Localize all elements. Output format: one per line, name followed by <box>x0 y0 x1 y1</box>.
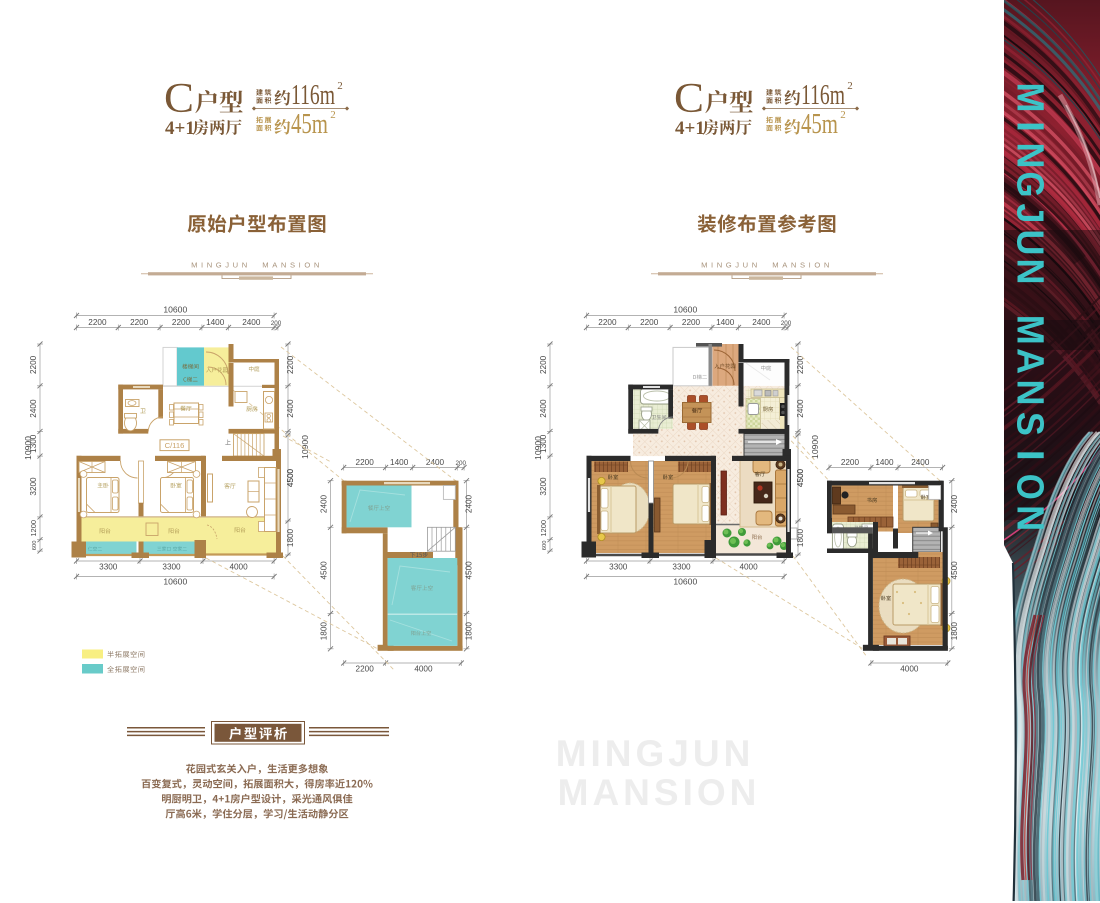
svg-text:4500: 4500 <box>465 561 474 580</box>
svg-text:4000: 4000 <box>900 665 919 674</box>
svg-text:1800: 1800 <box>286 528 295 547</box>
svg-text:1400: 1400 <box>390 458 409 467</box>
svg-text:4500: 4500 <box>796 468 805 487</box>
svg-text:2200: 2200 <box>682 318 701 327</box>
svg-text:4+1: 4+1 <box>165 118 195 139</box>
svg-text:4000: 4000 <box>229 563 248 572</box>
svg-text:1400: 1400 <box>875 458 894 467</box>
svg-text:2400: 2400 <box>320 494 329 513</box>
svg-text:10900: 10900 <box>23 436 33 460</box>
svg-text:2400: 2400 <box>752 318 771 327</box>
svg-text:2200: 2200 <box>88 318 107 327</box>
svg-text:4500: 4500 <box>320 561 329 580</box>
svg-text:2400: 2400 <box>426 458 445 467</box>
svg-text:200: 200 <box>455 460 466 467</box>
svg-text:4500: 4500 <box>950 561 959 580</box>
svg-text:10600: 10600 <box>163 305 187 315</box>
svg-text:N: N <box>1009 380 1051 406</box>
svg-text:2200: 2200 <box>29 355 38 374</box>
svg-text:2200: 2200 <box>356 665 375 674</box>
svg-text:C: C <box>164 76 194 122</box>
svg-text:1400: 1400 <box>716 318 735 327</box>
svg-text:2200: 2200 <box>130 318 149 327</box>
svg-text:MINGJUN: MINGJUN <box>556 733 755 774</box>
svg-text:1400: 1400 <box>206 318 225 327</box>
svg-text:10900: 10900 <box>810 435 820 459</box>
svg-text:MINGJUN MANSION: MINGJUN MANSION <box>191 261 323 270</box>
svg-text:MANSION: MANSION <box>558 772 761 813</box>
svg-text:1800: 1800 <box>320 622 329 641</box>
svg-text:45m: 45m <box>291 108 328 140</box>
svg-text:116m: 116m <box>291 79 335 111</box>
svg-text:I: I <box>1009 450 1051 461</box>
svg-text:4+1: 4+1 <box>675 118 705 139</box>
svg-text:116m: 116m <box>801 79 845 111</box>
svg-text:200: 200 <box>271 320 282 327</box>
svg-text:G: G <box>1009 172 1051 198</box>
svg-text:200: 200 <box>781 320 792 327</box>
svg-text:A: A <box>1009 348 1051 374</box>
svg-text:600: 600 <box>542 541 548 551</box>
svg-text:600: 600 <box>32 541 38 551</box>
svg-text:2: 2 <box>840 109 846 121</box>
svg-text:1800: 1800 <box>465 622 474 641</box>
svg-text:2200: 2200 <box>356 458 375 467</box>
svg-text:2200: 2200 <box>640 318 659 327</box>
svg-text:45m: 45m <box>801 108 838 140</box>
svg-text:M: M <box>1009 315 1051 345</box>
svg-text:2400: 2400 <box>911 458 930 467</box>
svg-text:2: 2 <box>337 80 343 92</box>
svg-text:N: N <box>1009 259 1051 285</box>
svg-text:10600: 10600 <box>673 305 697 315</box>
svg-text:U: U <box>1009 230 1051 256</box>
svg-text:C/116: C/116 <box>165 441 185 450</box>
svg-text:3300: 3300 <box>672 563 691 572</box>
svg-text:10900: 10900 <box>300 435 310 459</box>
svg-text:M: M <box>1009 83 1051 113</box>
svg-text:2400: 2400 <box>242 318 261 327</box>
svg-text:2400: 2400 <box>796 399 805 418</box>
svg-text:I: I <box>1009 121 1051 132</box>
svg-text:2400: 2400 <box>465 494 474 513</box>
svg-text:10600: 10600 <box>163 577 187 587</box>
svg-text:3300: 3300 <box>609 563 628 572</box>
svg-text:MINGJUN MANSION: MINGJUN MANSION <box>701 261 833 270</box>
svg-text:J: J <box>1009 204 1051 224</box>
svg-text:2200: 2200 <box>598 318 617 327</box>
svg-text:3300: 3300 <box>99 563 118 572</box>
svg-text:N: N <box>1009 143 1051 169</box>
svg-text:1200: 1200 <box>539 520 548 537</box>
svg-text:2400: 2400 <box>29 399 38 418</box>
svg-text:2: 2 <box>330 109 336 121</box>
svg-text:S: S <box>1009 412 1051 436</box>
svg-text:N: N <box>1009 505 1051 531</box>
svg-text:3300: 3300 <box>162 563 181 572</box>
svg-text:4000: 4000 <box>739 563 758 572</box>
svg-text:1800: 1800 <box>950 622 959 641</box>
svg-text:4000: 4000 <box>414 665 433 674</box>
svg-text:10900: 10900 <box>533 436 543 460</box>
svg-text:4500: 4500 <box>286 468 295 487</box>
svg-text:2200: 2200 <box>841 458 860 467</box>
svg-text:2200: 2200 <box>172 318 191 327</box>
svg-text:10600: 10600 <box>673 577 697 587</box>
svg-text:3200: 3200 <box>539 477 548 496</box>
svg-text:2400: 2400 <box>950 494 959 513</box>
svg-text:O: O <box>1009 474 1051 500</box>
svg-text:2400: 2400 <box>539 399 548 418</box>
svg-text:3200: 3200 <box>29 477 38 496</box>
svg-text:2200: 2200 <box>286 355 295 374</box>
svg-text:1200: 1200 <box>29 520 38 537</box>
svg-text:2400: 2400 <box>286 399 295 418</box>
svg-text:2200: 2200 <box>539 355 548 374</box>
svg-text:C: C <box>674 76 704 122</box>
svg-text:2: 2 <box>847 80 853 92</box>
